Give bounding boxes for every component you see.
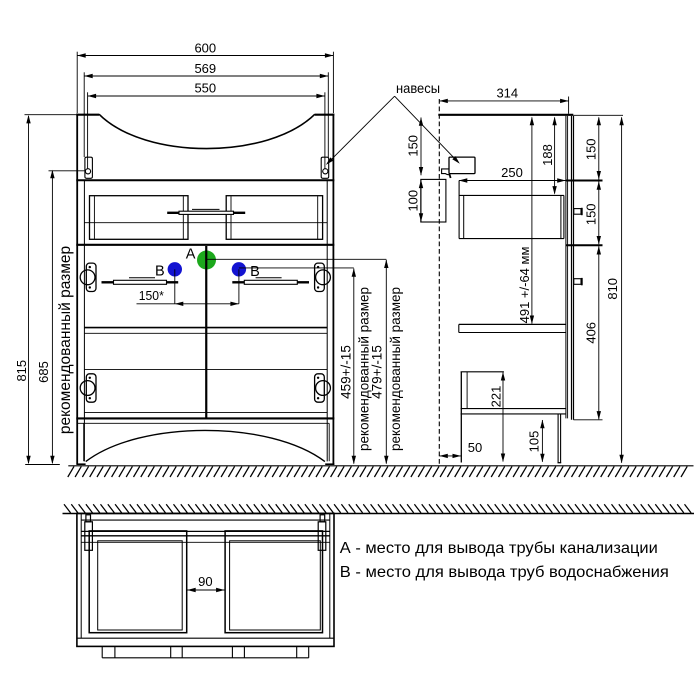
- svg-text:рекомендованный размер: рекомендованный размер: [388, 287, 403, 451]
- svg-text:150: 150: [584, 138, 599, 160]
- svg-text:221: 221: [488, 386, 503, 408]
- svg-text:685: 685: [36, 361, 51, 383]
- svg-text:150: 150: [406, 135, 421, 157]
- svg-text:150*: 150*: [139, 288, 164, 303]
- svg-text:810: 810: [605, 278, 620, 300]
- svg-text:491 +/-64 мм: 491 +/-64 мм: [517, 247, 532, 324]
- svg-text:406: 406: [584, 322, 599, 344]
- svg-text:550: 550: [194, 81, 216, 96]
- svg-text:100: 100: [406, 190, 421, 212]
- svg-text:314: 314: [496, 86, 518, 101]
- svg-text:600: 600: [194, 40, 216, 55]
- svg-text:569: 569: [194, 61, 216, 76]
- svg-text:50: 50: [468, 440, 482, 455]
- svg-text:А - место для вывода трубы кан: А - место для вывода трубы канализации: [340, 540, 658, 557]
- svg-text:188: 188: [540, 144, 555, 166]
- svg-text:А: А: [186, 246, 196, 262]
- svg-text:250: 250: [501, 165, 523, 180]
- svg-text:В - место для вывода труб водо: В - место для вывода труб водоснабжения: [340, 564, 669, 581]
- svg-text:479+/-15: 479+/-15: [370, 345, 385, 399]
- svg-text:В: В: [250, 264, 260, 280]
- svg-text:В: В: [155, 263, 165, 279]
- svg-text:90: 90: [198, 574, 212, 589]
- svg-text:459+/-15: 459+/-15: [339, 345, 354, 399]
- svg-text:150: 150: [584, 203, 599, 225]
- svg-text:105: 105: [527, 431, 542, 453]
- svg-text:815: 815: [14, 360, 29, 382]
- svg-text:навесы: навесы: [396, 80, 440, 96]
- svg-text:рекомендованный размер: рекомендованный размер: [57, 246, 74, 434]
